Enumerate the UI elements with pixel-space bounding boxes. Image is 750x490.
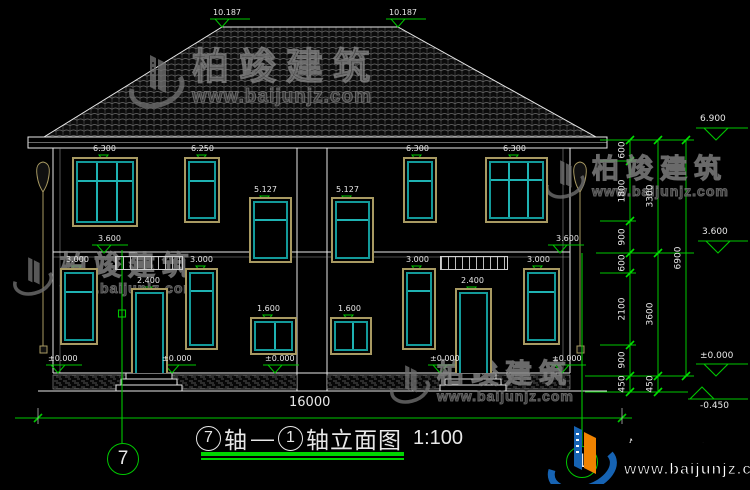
dim-value: 450 — [647, 375, 656, 392]
level-label: 6.900 — [700, 115, 726, 123]
axis-bubble-7: 7 — [107, 443, 139, 475]
title-axis-bubble-right: 1 — [278, 426, 303, 451]
window-f2-4 — [331, 197, 374, 263]
window-f2-1 — [72, 157, 138, 227]
ridge-level-left: 10.187 — [213, 9, 241, 17]
dim-value: 900 — [619, 351, 628, 368]
title-axis-bubble-left: 7 — [196, 426, 221, 451]
window-dim: 1.600 — [338, 305, 361, 313]
window-f1-2 — [185, 268, 218, 350]
window-dim: 1.600 — [257, 305, 280, 313]
window-dim: 6.250 — [191, 145, 214, 153]
window-dim: 3.000 — [406, 256, 429, 264]
window-dim: 3.000 — [527, 256, 550, 264]
dim-value: 6900 — [675, 247, 684, 270]
title-underline — [201, 452, 404, 460]
window-f1-3 — [250, 317, 297, 355]
level-label: ±0.000 — [162, 355, 192, 363]
site-logo-brand: 柏竣建筑 — [624, 427, 750, 461]
window-dim: 5.127 — [336, 186, 359, 194]
level-label: ±0.000 — [552, 355, 582, 363]
entry-door-right — [455, 288, 492, 373]
level-label: ±0.000 — [265, 355, 295, 363]
door-dim: 2.400 — [137, 277, 160, 285]
window-f2-6 — [485, 157, 548, 223]
window-f2-5 — [403, 157, 437, 223]
window-f1-1 — [60, 268, 98, 345]
window-f1-6 — [523, 268, 560, 345]
window-dim: 6.300 — [93, 145, 116, 153]
level-label: ±0.000 — [700, 352, 733, 360]
level-label: 3.600 — [98, 235, 121, 243]
downspout-left — [37, 162, 50, 353]
level-label: ±0.000 — [430, 355, 460, 363]
dim-value: 600 — [619, 141, 628, 158]
window-dim: 3.000 — [190, 256, 213, 264]
entry-steps-right — [440, 373, 506, 391]
dim-value: 900 — [619, 228, 628, 245]
level-label: 3.600 — [556, 235, 579, 243]
title-dash: — — [251, 425, 275, 452]
entry-steps-left — [116, 373, 182, 391]
title-scale: 1:100 — [413, 427, 463, 450]
drawing-title: 7 轴 — 1 轴立面图 1:100 — [196, 421, 463, 455]
window-f2-3 — [249, 197, 292, 263]
level-label: 3.600 — [702, 228, 728, 236]
dim-value: 450 — [619, 375, 628, 392]
porch-railing-right — [440, 256, 508, 270]
title-axis-word: 轴 — [224, 421, 248, 455]
dim-value: 3600 — [647, 303, 656, 326]
site-logo: 柏竣建筑 www.baijunjz.com — [540, 420, 750, 484]
window-f2-2 — [184, 157, 220, 223]
window-dim: 3.000 — [66, 256, 89, 264]
window-f1-5 — [402, 268, 436, 350]
cad-elevation-canvas: 柏竣建筑 www.baijunjz.com 柏竣建筑 www.baijunjz.… — [0, 0, 750, 490]
window-dim: 6.300 — [406, 145, 429, 153]
dim-value: 2100 — [619, 298, 628, 321]
porch-railing-left — [115, 256, 183, 270]
window-dim: 6.300 — [503, 145, 526, 153]
dim-value: 3300 — [647, 185, 656, 208]
site-logo-url: www.baijunjz.com — [624, 461, 750, 478]
dim-value: 600 — [619, 254, 628, 271]
title-text: 轴立面图 — [306, 421, 402, 455]
level-label: -0.450 — [700, 402, 729, 410]
dim-value: 1800 — [619, 180, 628, 203]
downspout-right — [574, 162, 587, 353]
drawing-linework — [0, 0, 750, 490]
window-f1-4 — [330, 317, 372, 355]
window-dim: 5.127 — [254, 186, 277, 194]
level-label: ±0.000 — [48, 355, 78, 363]
overall-width-dim: 16000 — [289, 399, 330, 407]
site-logo-icon — [540, 420, 620, 484]
hip-roof — [28, 27, 607, 148]
ridge-level-right: 10.187 — [389, 9, 417, 17]
ridge-level-symbols — [210, 19, 426, 27]
door-dim: 2.400 — [461, 277, 484, 285]
